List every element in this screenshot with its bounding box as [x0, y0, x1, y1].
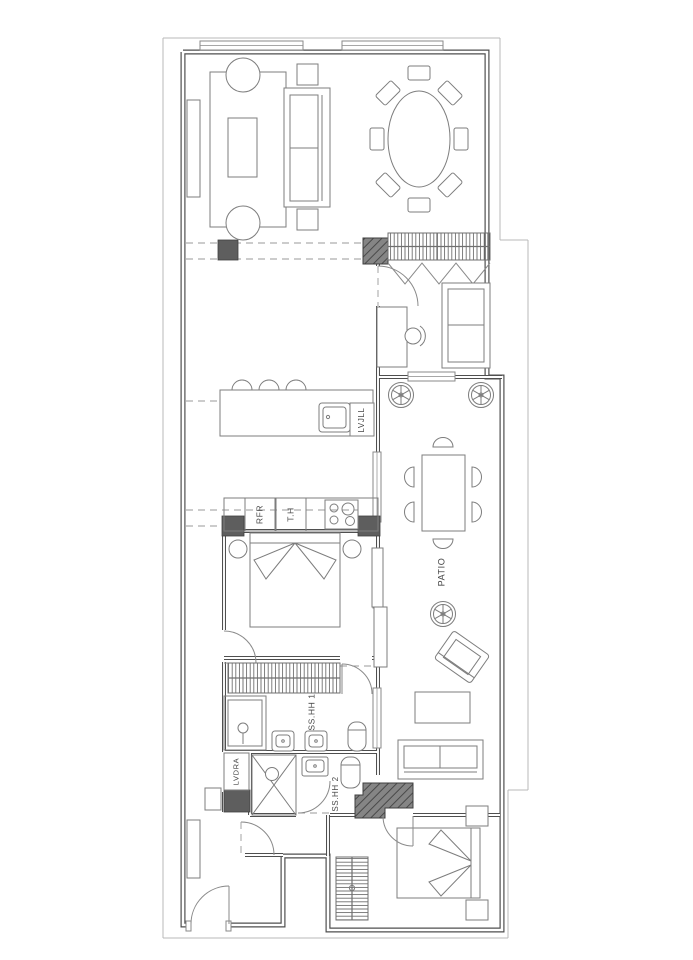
console-shelf — [187, 100, 200, 197]
nightstand — [343, 540, 361, 558]
nightstand — [229, 540, 247, 558]
toilet — [348, 722, 366, 751]
nightstand — [466, 806, 488, 826]
patio-label: PATIO — [436, 558, 446, 587]
balcony-closet — [388, 233, 490, 284]
desk-chair — [405, 328, 421, 344]
door-arc-bath2 — [298, 781, 330, 813]
coffee-table — [228, 118, 257, 177]
window-patio-3 — [373, 688, 381, 748]
door-arc-study — [378, 266, 418, 306]
patio-chair — [433, 539, 453, 549]
planter-icon — [431, 602, 456, 627]
toilet — [341, 757, 360, 788]
square-side-table — [297, 64, 318, 85]
living-room — [187, 58, 330, 240]
nightstand — [466, 900, 488, 920]
floor-plan-page: LVJLL RFR T.H — [0, 0, 693, 960]
sofa — [284, 88, 330, 207]
bar-stool — [232, 380, 252, 390]
patio: PATIO — [389, 383, 494, 780]
sink — [302, 757, 328, 776]
column — [218, 240, 238, 260]
door-jamb — [186, 921, 191, 931]
column-hatched — [363, 238, 388, 264]
dining-chair — [375, 172, 400, 197]
closet-2 — [336, 857, 368, 920]
patio-chair — [405, 502, 415, 522]
kitchen-counter: RFR T.H — [224, 498, 378, 531]
patio-chair — [472, 502, 482, 522]
bar-stool — [286, 380, 306, 390]
cabinet — [205, 788, 221, 810]
bedroom-2: DORM 2 — [336, 806, 488, 920]
round-side-table — [226, 206, 260, 240]
dining-table — [388, 91, 450, 187]
closet-1 — [228, 663, 340, 693]
bathroom1-label: SS.HH 1 — [306, 693, 316, 730]
armchair — [434, 630, 490, 683]
shower — [224, 696, 266, 750]
patio-chair — [405, 467, 415, 487]
sink — [272, 731, 294, 751]
patio-table — [422, 455, 465, 531]
column-hatched-l — [355, 783, 413, 818]
dining-chair — [437, 80, 462, 105]
desk — [377, 307, 407, 367]
planter-icon — [469, 383, 494, 408]
bed — [397, 828, 480, 898]
sink — [305, 731, 327, 751]
dining-chair — [437, 172, 462, 197]
dining-chair — [375, 80, 400, 105]
bifold-doors — [388, 263, 490, 284]
window-top-left — [200, 41, 303, 50]
round-side-table — [226, 58, 260, 92]
square-side-table — [297, 209, 318, 230]
bathroom2-label: SS.HH 2 — [331, 776, 340, 811]
console-shelf — [187, 820, 200, 878]
patio-chair — [472, 467, 482, 487]
wall-shelf — [374, 607, 387, 667]
entry-hall — [186, 820, 274, 931]
ottoman — [415, 692, 470, 723]
entry-door-arc — [191, 886, 229, 924]
hall-door-arc — [241, 822, 274, 855]
bed — [250, 533, 340, 627]
shower-x — [252, 755, 296, 815]
kitchen-sink — [319, 403, 350, 432]
dining-chair — [408, 66, 430, 80]
dining-chair — [370, 128, 384, 150]
laundry-label: LVDRA — [231, 758, 240, 785]
floor-plan-canvas: LVJLL RFR T.H — [0, 0, 693, 960]
dining-chair — [454, 128, 468, 150]
wall-shelf — [372, 548, 383, 607]
planter-icon — [389, 383, 414, 408]
window-study-patio — [408, 372, 455, 381]
island-label: LVJLL — [357, 407, 366, 432]
door-arc-bath1 — [342, 664, 372, 694]
window-patio-1 — [373, 452, 381, 522]
tall-unit-label: T.H — [285, 507, 295, 522]
window-top-right — [342, 41, 443, 50]
patio-bench — [398, 740, 483, 779]
dining-chair — [408, 198, 430, 212]
daybed — [442, 283, 490, 368]
bar-stool — [259, 380, 279, 390]
dashed-guides — [186, 243, 376, 813]
bathroom-2: SS.HH 2 — [252, 755, 360, 815]
patio-chair — [433, 438, 453, 448]
bedroom-1 — [224, 533, 387, 667]
study-room — [377, 266, 490, 368]
cooktop — [325, 500, 358, 529]
column — [222, 516, 244, 536]
column — [224, 790, 250, 812]
dining-area — [370, 66, 468, 212]
fridge-label: RFR — [254, 505, 264, 524]
kitchen: LVJLL RFR T.H — [220, 380, 378, 531]
column — [358, 516, 380, 536]
